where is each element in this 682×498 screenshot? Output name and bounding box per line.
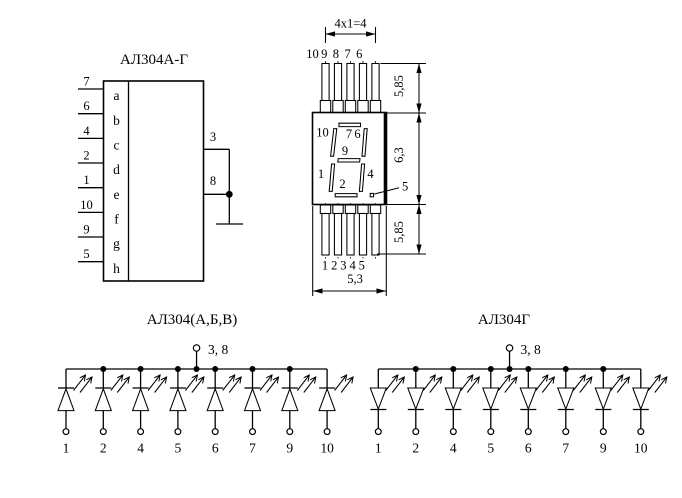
right-pin-rows: 3 8 (204, 130, 244, 224)
common-terminal (506, 345, 512, 351)
pin-number-label: 2 (100, 441, 107, 456)
pin-number-label: 7 (562, 441, 569, 456)
pin-number-label: 7 (83, 75, 89, 89)
dimension-label: 5,85 (392, 221, 406, 243)
pin-terminal (413, 429, 419, 435)
pin-number-label: 9 (321, 47, 327, 61)
diode-triangle (408, 388, 424, 409)
common-pins-label: 3, 8 (208, 342, 229, 357)
top-leads: 109876 (306, 47, 380, 113)
package-pin (372, 64, 379, 102)
pin-number-label: 5 (83, 247, 89, 261)
segment-bottom (335, 194, 357, 197)
diode-triangle (483, 388, 499, 409)
pitch-dimension-label: 4x1=4 (334, 17, 367, 31)
package-pin-foot (345, 101, 355, 113)
package-pin (322, 214, 329, 256)
package-pin (359, 64, 366, 102)
junction-dot (194, 366, 200, 372)
segment-letter-label: c (114, 138, 120, 153)
diode-triangle (633, 388, 649, 409)
dimension-arrowhead (416, 245, 421, 255)
pin-terminal (100, 429, 106, 435)
pin-terminal (450, 429, 456, 435)
diode-triangle (58, 389, 74, 411)
pin-number-label: 10 (80, 198, 93, 212)
bottom-leads: 12345 (320, 203, 380, 273)
dimension-arrowhead (313, 288, 323, 293)
junction-dot (226, 191, 233, 198)
pin-number-label: 3 (210, 130, 216, 144)
pin-number-label: 4 (450, 441, 457, 456)
package-pin (322, 64, 329, 102)
segment-label: 1 (318, 167, 324, 181)
segment-label: 10 (316, 126, 329, 140)
junction-dot (507, 366, 513, 372)
package-pin (347, 64, 354, 102)
diode-triangle (133, 389, 149, 411)
schematic-al304g: АЛ304Г 3, 8 124567910 (370, 312, 667, 456)
dimension-arrowhead (416, 205, 421, 215)
pin-number-label: 10 (634, 441, 648, 456)
left-pin-rows: 7a6b4c2d1e10f9g5h (78, 75, 120, 276)
pin-number-label: 9 (600, 441, 607, 456)
diode-triangle (370, 388, 386, 409)
pin-terminal (488, 429, 494, 435)
pin-number-label: 2 (331, 259, 337, 273)
segment-bottom-right (359, 164, 364, 191)
pin-number-label: 5 (487, 441, 494, 456)
dimension-label: 5,85 (392, 75, 406, 97)
segment-letter-label: a (114, 88, 120, 103)
pin-number-label: 3 (340, 259, 346, 273)
pin-number-label: 4 (137, 441, 144, 456)
package-pin-foot (358, 205, 368, 214)
pin-terminal (212, 429, 218, 435)
package-pin-foot (320, 101, 330, 113)
segment-label: 2 (339, 177, 345, 191)
decimal-point (370, 193, 373, 196)
segment-top-left (331, 129, 337, 157)
pin-number-label: 6 (525, 441, 532, 456)
diode-triangle (95, 389, 111, 411)
diode-triangle (282, 389, 298, 411)
pin-number-label: 6 (83, 99, 89, 113)
diode-triangle (445, 388, 461, 409)
pin-number-label: 6 (212, 441, 219, 456)
common-pins-label: 3, 8 (521, 342, 542, 357)
package-pin (334, 64, 341, 102)
pin-symbol-diagram: АЛ304А-Г 7a6b4c2d1e10f9g5h 3 8 (78, 52, 243, 281)
diode-triangle (170, 389, 186, 411)
segment-top-right (362, 129, 367, 157)
dimension-label: 6,3 (392, 147, 406, 163)
pin-number-label: 5 (175, 441, 182, 456)
segment-letter-label: d (113, 162, 120, 177)
pin-number-label: 7 (344, 47, 350, 61)
segment-label: 4 (367, 167, 374, 181)
pin-number-label: 9 (83, 223, 89, 237)
pin-terminal (600, 429, 606, 435)
dimension-arrowhead (416, 113, 421, 123)
pin-number-label: 6 (356, 47, 362, 61)
pin-terminal (63, 429, 69, 435)
package-pin-foot (345, 205, 355, 214)
package-pin-foot (320, 205, 330, 214)
pin-terminal (250, 429, 256, 435)
pin-terminal (324, 429, 330, 435)
segment-letter-label: h (113, 261, 120, 276)
diode-triangle (245, 389, 261, 411)
figure-svg: АЛ304А-Г 7a6b4c2d1e10f9g5h 3 8 4x1=4 109… (0, 0, 682, 498)
package-pin-foot (358, 101, 368, 113)
pin-number-label: 10 (320, 441, 334, 456)
dimension-arrowhead (416, 104, 421, 114)
pin-number-label: 2 (412, 441, 419, 456)
diode-triangle (207, 389, 223, 411)
diode-triangle (520, 388, 536, 409)
segment-letter-label: f (114, 212, 119, 227)
dimension-label: 5,3 (347, 272, 363, 286)
schematic-title: АЛ304(А,Б,В) (147, 312, 237, 328)
led-array: 124567910 (58, 345, 353, 456)
package-pin-foot (370, 205, 380, 214)
diode-triangle (595, 388, 611, 409)
segment-letter-label: b (113, 113, 120, 128)
pin-diagram-title: АЛ304А-Г (120, 52, 188, 68)
segment-label: 6 (354, 127, 360, 141)
segment-label: 9 (342, 144, 348, 158)
pin-terminal (175, 429, 181, 435)
pin-number-label: 1 (83, 173, 89, 187)
dimension-arrowhead (416, 64, 421, 74)
datasheet-figure: АЛ304А-Г 7a6b4c2d1e10f9g5h 3 8 4x1=4 109… (0, 0, 682, 498)
pin-number-label: 4 (349, 259, 356, 273)
dimension-arrowhead (377, 288, 387, 293)
diode-triangle (319, 389, 335, 411)
schematic-title: АЛ304Г (478, 312, 531, 328)
pin-number-label: 7 (249, 441, 256, 456)
package-pin-foot (333, 205, 343, 214)
pin-terminal (525, 429, 531, 435)
led-array: 124567910 (370, 345, 667, 456)
package-pin (359, 214, 366, 256)
pin-terminal (638, 429, 644, 435)
pin-terminal (563, 429, 569, 435)
pin-terminal (375, 429, 381, 435)
pin-number-label: 4 (83, 124, 90, 138)
pin-number-label: 10 (306, 47, 319, 61)
schematic-al304abv: АЛ304(А,Б,В) 3, 8 124567910 (58, 312, 353, 456)
segment-label: 7 (346, 127, 352, 141)
pin-terminal (287, 429, 293, 435)
package-pin-foot (370, 101, 380, 113)
pin-number-label: 8 (333, 47, 339, 61)
pin-number-label: 1 (375, 441, 382, 456)
pin-number-label: 9 (286, 441, 293, 456)
dimension-arrowhead (326, 31, 336, 36)
segment-bottom-left (329, 164, 334, 191)
package-pin-foot (333, 101, 343, 113)
dimension-arrowhead (416, 195, 421, 205)
pin-number-label: 8 (210, 174, 216, 188)
segment-middle (338, 159, 360, 162)
common-terminal (193, 345, 199, 351)
pin-number-label: 1 (322, 259, 328, 273)
pin-number-label: 2 (83, 149, 89, 163)
dimension-arrowhead (366, 31, 376, 36)
package-drawing: 4x1=4 109876 12345 10 7 6 9 1 2 (306, 17, 426, 297)
segment-letter-label: e (114, 187, 120, 202)
package-pin (347, 214, 354, 256)
segment-label: 5 (402, 180, 408, 194)
diode-triangle (558, 388, 574, 409)
package-pin (334, 214, 341, 256)
package-pin (372, 214, 379, 256)
pin-terminal (138, 429, 144, 435)
pin-number-label: 1 (63, 441, 70, 456)
segment-letter-label: g (113, 236, 120, 251)
pin-number-label: 5 (359, 259, 365, 273)
